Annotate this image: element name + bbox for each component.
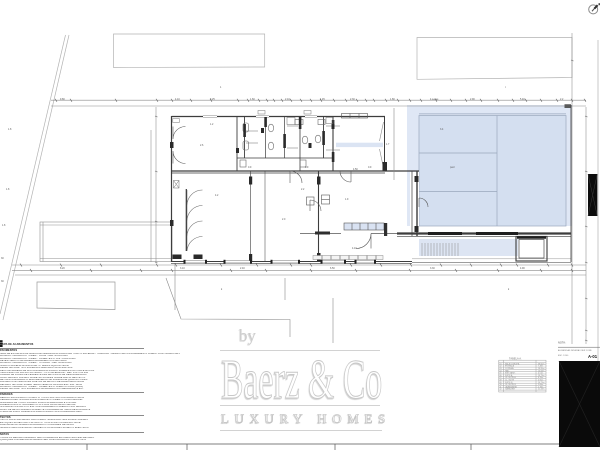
svg-text:0.9: 0.9	[248, 166, 252, 169]
svg-text:t: t	[505, 86, 506, 89]
svg-text:2.2: 2.2	[560, 98, 564, 101]
svg-text:30: 30	[1, 280, 4, 283]
svg-text:4.90: 4.90	[520, 267, 525, 270]
svg-text:1.8: 1.8	[6, 188, 10, 191]
svg-text:2.0: 2.0	[282, 218, 286, 221]
svg-text:ESC. 1/100: ESC. 1/100	[558, 355, 569, 357]
svg-text:AS MEDIDAS DEVERAO SER CONF.: AS MEDIDAS DEVERAO SER CONF.	[558, 349, 592, 352]
svg-text:TABELA A.: TABELA A.	[509, 357, 522, 361]
svg-text:12: 12	[500, 389, 502, 391]
svg-text:4.2: 4.2	[215, 194, 219, 197]
svg-text:GARAGEM: GARAGEM	[505, 388, 515, 391]
svg-text:k: k	[508, 288, 510, 291]
svg-text:1.8: 1.8	[8, 128, 12, 131]
svg-text:0.9: 0.9	[305, 166, 309, 169]
svg-text:NOTA:: NOTA:	[558, 341, 566, 345]
svg-text:1.80: 1.80	[390, 98, 395, 101]
svg-text:1.2: 1.2	[210, 123, 214, 126]
svg-text:pool: pool	[450, 166, 455, 169]
svg-text:2.10: 2.10	[285, 98, 290, 101]
svg-text:9.80: 9.80	[60, 98, 65, 101]
svg-text:2.90: 2.90	[470, 98, 475, 101]
svg-text:0.9: 0.9	[368, 166, 372, 169]
svg-text:2.2: 2.2	[301, 188, 305, 191]
svg-text:21.43m: 21.43m	[538, 389, 545, 391]
svg-text:A-01: A-01	[588, 354, 598, 359]
svg-text:1.60: 1.60	[250, 98, 255, 101]
svg-text:3.25: 3.25	[210, 98, 215, 101]
svg-text:30: 30	[1, 257, 4, 260]
svg-text:2.6: 2.6	[200, 144, 204, 147]
svg-text:k: k	[221, 288, 223, 291]
svg-text:4.series: 4.series	[430, 98, 439, 101]
svg-text:4.10: 4.10	[175, 98, 180, 101]
svg-text:5.40: 5.40	[520, 98, 525, 101]
svg-text:8.20: 8.20	[60, 267, 65, 270]
svg-text:1.8: 1.8	[2, 224, 6, 227]
svg-text:1: 1	[220, 86, 222, 89]
svg-text:6.50: 6.50	[330, 267, 335, 270]
svg-text:3.10: 3.10	[180, 267, 185, 270]
svg-text:3.30: 3.30	[430, 267, 435, 270]
svg-text:4.50: 4.50	[353, 168, 358, 171]
svg-text:2.40: 2.40	[240, 267, 245, 270]
svg-text:2.30: 2.30	[350, 98, 355, 101]
svg-text:1.45: 1.45	[320, 98, 325, 101]
svg-text:1.9: 1.9	[345, 198, 349, 201]
svg-text:1.7: 1.7	[386, 143, 390, 146]
